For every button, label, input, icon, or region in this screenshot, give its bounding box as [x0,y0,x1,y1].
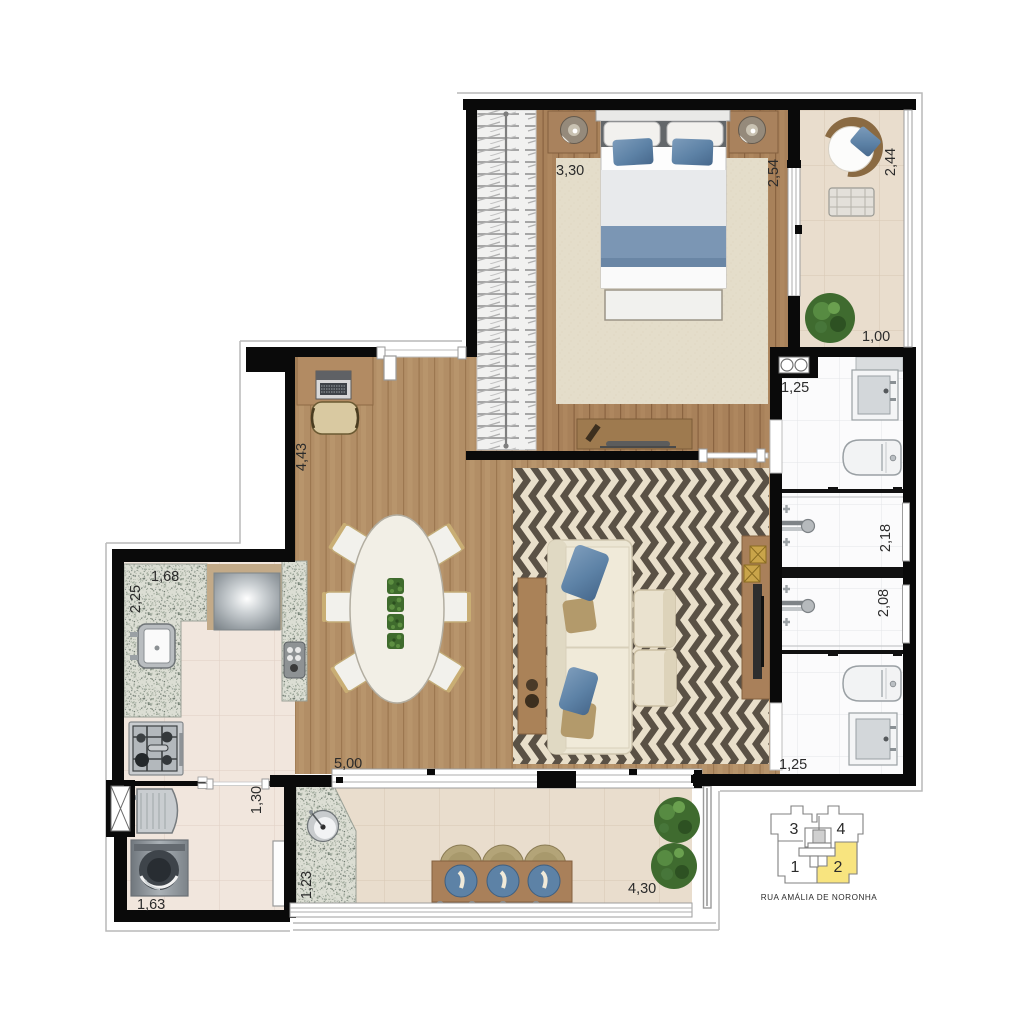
svg-text:4,30: 4,30 [628,881,656,897]
svg-text:1,63: 1,63 [137,897,165,913]
svg-text:RUA AMÁLIA DE NORONHA: RUA AMÁLIA DE NORONHA [761,892,878,902]
svg-text:1,68: 1,68 [151,569,179,585]
svg-text:2,18: 2,18 [878,524,894,552]
svg-text:5,00: 5,00 [334,756,362,772]
svg-text:1,25: 1,25 [779,757,807,773]
svg-text:1,00: 1,00 [862,329,890,345]
svg-text:1: 1 [791,859,800,876]
svg-text:3,30: 3,30 [556,163,584,179]
svg-text:4,43: 4,43 [294,443,310,471]
svg-text:4: 4 [837,821,846,838]
svg-text:2,44: 2,44 [883,148,899,176]
svg-text:3: 3 [790,821,799,838]
svg-text:2,54: 2,54 [766,159,782,187]
svg-text:1,25: 1,25 [781,380,809,396]
svg-text:1,23: 1,23 [299,871,315,899]
svg-text:1,30: 1,30 [249,786,265,814]
svg-text:2,08: 2,08 [876,589,892,617]
svg-text:2,25: 2,25 [128,585,144,613]
svg-text:2: 2 [834,859,843,876]
